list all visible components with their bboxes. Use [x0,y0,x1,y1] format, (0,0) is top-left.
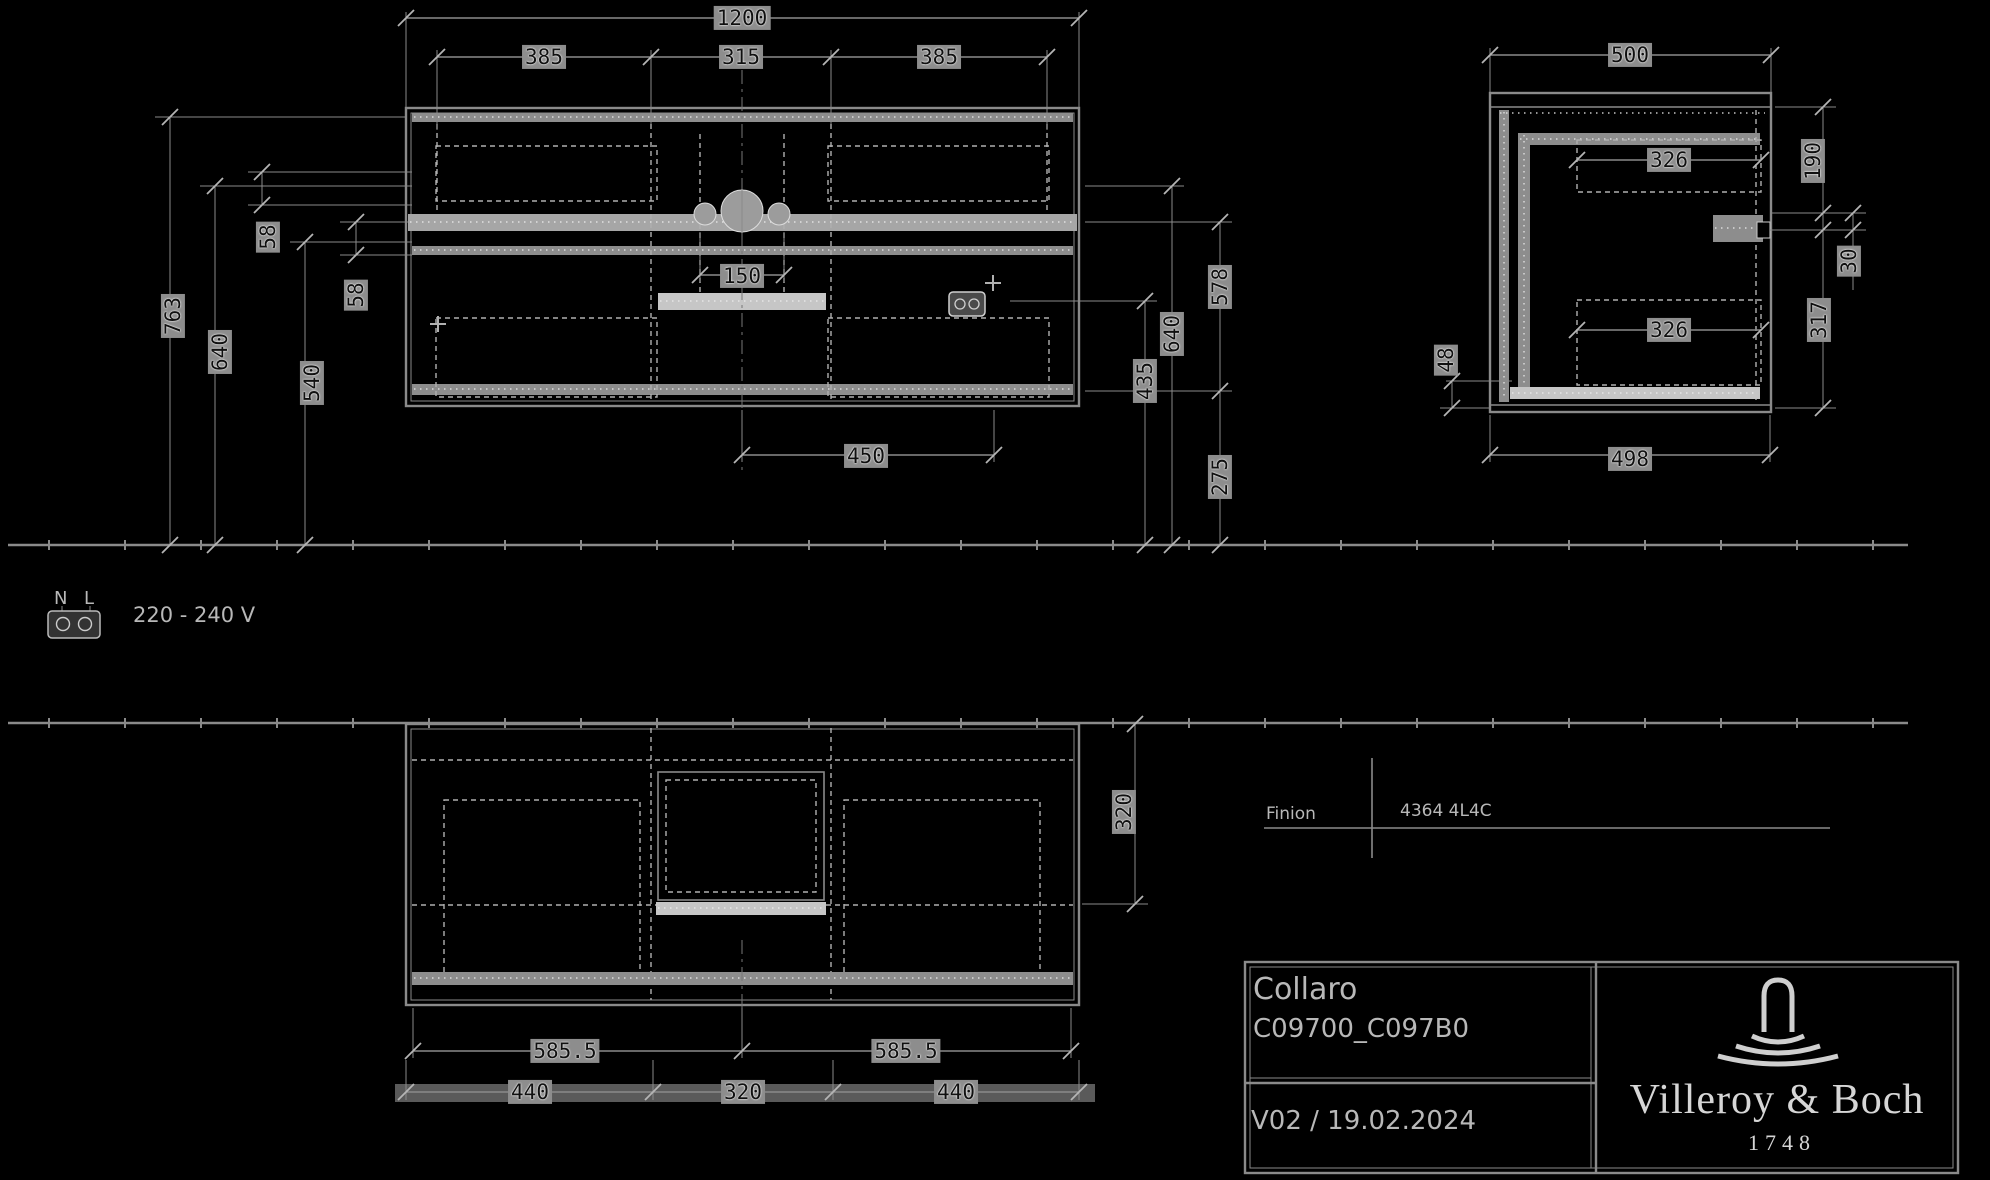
dimension-ticks [162,10,1861,1100]
dim-plan-440-right: 440 [934,1080,978,1104]
side-view [1490,93,1771,412]
dim-front-height-435: 435 [1133,359,1157,403]
plan-view [406,724,1079,1045]
brand-logo-icon [1718,980,1838,1064]
basin-outline [658,772,824,900]
dim-front-height-640l: 640 [208,330,232,374]
dim-side-317: 317 [1807,298,1831,342]
dim-front-total-width: 1200 [714,6,771,30]
drawing-canvas [0,0,1990,1180]
dim-front-height-763: 763 [161,294,185,338]
drawing-version: V02 / 19.02.2024 [1251,1106,1476,1136]
dim-front-height-640r: 640 [1160,312,1184,356]
drain-connection [1713,215,1770,242]
reference-code: 4364 4L4C [1400,801,1492,821]
reference-name: Finion [1266,804,1316,824]
front-view-dimensions [155,12,1232,545]
dim-front-height-578: 578 [1208,265,1232,309]
mounting-cross-right [985,275,1001,291]
dim-plan-5855-left: 585.5 [530,1039,599,1063]
dim-front-height-275: 275 [1208,455,1232,499]
electrical-l-label: L [84,588,94,609]
dim-front-gap-58b: 58 [344,279,368,310]
side-drawer-bottom [1577,300,1761,385]
dim-front-width-left: 385 [522,45,566,69]
dim-plan-320-mid: 320 [721,1080,765,1104]
plan-drawer-right [844,800,1040,978]
dim-side-depth-498: 498 [1608,447,1652,471]
plan-drawer-left [444,800,640,978]
dim-front-width-right: 385 [917,45,961,69]
dim-front-center-150: 150 [720,264,764,288]
dim-front-bottom-450: 450 [844,444,888,468]
dim-side-190: 190 [1801,139,1825,183]
drawer-front-top-left [436,146,657,201]
brand-name: Villeroy & Boch [1630,1076,1925,1124]
dim-side-48: 48 [1434,344,1458,375]
series-name: Collaro [1253,972,1357,1007]
dim-side-326-upper: 326 [1647,148,1691,172]
dim-plan-5855-right: 585.5 [871,1039,940,1063]
dim-front-gap-58a: 58 [256,221,280,252]
technical-drawing-sheet: 1200 385 315 385 763 640 540 58 58 150 4… [0,0,1990,1180]
dim-front-height-540: 540 [300,361,324,405]
mounting-cross-left [430,316,446,332]
dim-plan-440-left: 440 [508,1080,552,1104]
washbasin-reference-line [1264,758,1830,858]
dim-side-30: 30 [1837,245,1861,276]
electrical-symbol [48,606,100,638]
dim-plan-320-side: 320 [1112,790,1136,834]
article-number: C09700_C097B0 [1253,1014,1469,1044]
dim-front-width-mid: 315 [719,45,763,69]
dim-side-326-lower: 326 [1647,318,1691,342]
brand-year: 1748 [1748,1130,1816,1156]
drawer-front-top-right [828,146,1049,201]
dim-side-depth-500: 500 [1608,43,1652,67]
voltage-label: 220 - 240 V [133,603,255,627]
electrical-n-label: N [54,588,67,609]
power-socket-icon [949,292,985,316]
socket-box-icon [48,611,100,638]
